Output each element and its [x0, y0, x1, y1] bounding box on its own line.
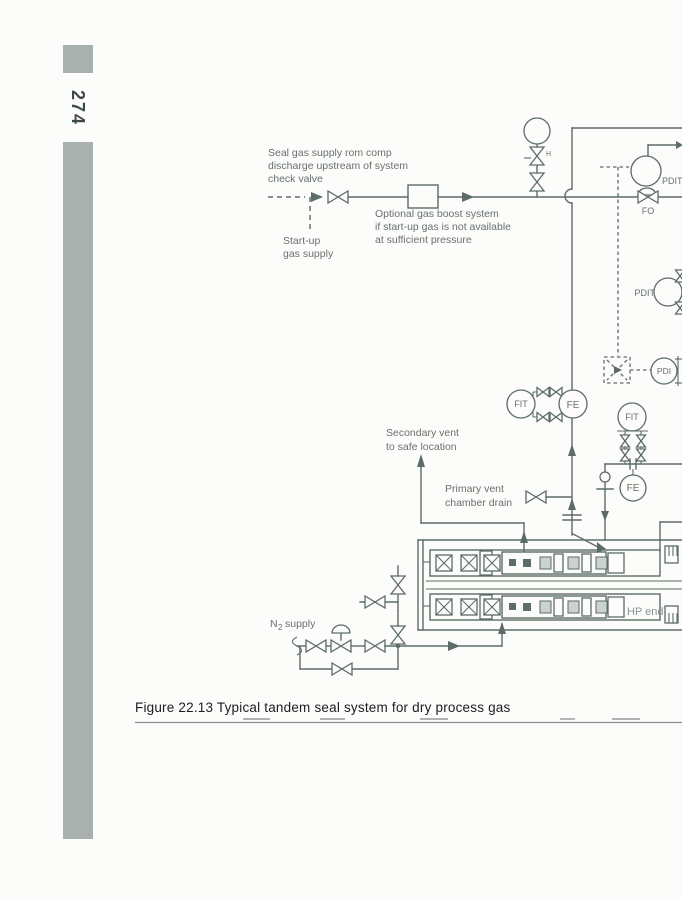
valve-icon: [676, 302, 682, 314]
flow-arrow-icon: [311, 192, 323, 202]
locked-valve-icon: [530, 147, 544, 165]
flow-meter-right: FIT FE: [597, 403, 682, 540]
valve-icon: [365, 640, 385, 652]
caption-rule: [135, 719, 682, 723]
svg-text:FE: FE: [567, 400, 580, 411]
boost-system-label: Optional gas boost system if start-up ga…: [375, 208, 511, 246]
svg-text:FO: FO: [642, 206, 655, 216]
valve-icon: [365, 596, 385, 608]
svg-text:Start-up: Start-up: [283, 235, 321, 247]
compressor-seal-assembly: HP end: [418, 522, 682, 630]
check-valve-icon: [328, 191, 348, 203]
drain-valve-icon: [526, 491, 546, 503]
primary-vent-drain: Primary vent chamber drain: [445, 483, 571, 509]
svg-text:N: N: [270, 618, 278, 630]
valve-icon: [537, 388, 549, 397]
svg-text:2: 2: [278, 623, 283, 632]
seal-cartridge-top: [430, 550, 660, 576]
flow-arrow-icon: [568, 498, 576, 510]
svg-text:FIT: FIT: [625, 412, 639, 422]
seal-gas-supply-label: Seal gas supply rom comp discharge upstr…: [268, 147, 408, 185]
svg-text:HP end: HP end: [627, 606, 664, 618]
actuator-diaphragm-icon: [631, 156, 661, 186]
figure-caption: Figure 22.13 Typical tandem seal system …: [135, 700, 510, 715]
startup-gas-label: Start-up gas supply: [283, 235, 334, 260]
valve-icon: [621, 435, 630, 447]
pdit-transmitter-mid: PDIT: [634, 270, 682, 314]
svg-text:H: H: [546, 151, 551, 158]
svg-text:Optional gas boost system: Optional gas boost system: [375, 208, 499, 220]
book-page: 274: [0, 0, 682, 900]
pdi-gauge-group: PDI: [604, 356, 682, 386]
valve-icon: [550, 413, 562, 422]
flow-arrow-icon: [520, 531, 528, 543]
svg-text:at sufficient pressure: at sufficient pressure: [375, 234, 472, 246]
valve-icon: [391, 576, 405, 594]
svg-text:PDIT: PDIT: [662, 176, 682, 186]
arrow-icon: [614, 366, 622, 374]
bearing-icon: [665, 606, 678, 623]
valve-icon: [637, 435, 646, 447]
bypass-valve-icon: [332, 663, 352, 675]
flow-meter-left: FIT FE: [507, 388, 587, 422]
svg-text:PDIT: PDIT: [634, 288, 655, 298]
seal-cartridge-bottom: [430, 594, 660, 620]
valve-icon: [676, 270, 682, 282]
svg-text:gas supply: gas supply: [283, 248, 334, 260]
svg-text:check valve: check valve: [268, 173, 323, 185]
valve-icon: [550, 388, 562, 397]
svg-text:FE: FE: [627, 483, 640, 494]
flow-arrow-icon: [448, 641, 460, 651]
flow-arrow-icon: [462, 192, 474, 202]
signal-arrow-icon: [676, 141, 682, 149]
valve-icon: [391, 626, 405, 644]
flow-arrow-icon: [568, 444, 576, 456]
svg-text:if start-up gas is not availab: if start-up gas is not available: [375, 221, 511, 233]
valve-icon: [306, 640, 326, 652]
svg-text:discharge upstream of system: discharge upstream of system: [268, 160, 408, 172]
svg-text:Primary vent: Primary vent: [445, 483, 504, 495]
gas-boost-box: [408, 185, 438, 208]
svg-text:Seal gas supply rom comp: Seal gas supply rom comp: [268, 147, 392, 159]
flow-arrow-icon: [601, 511, 609, 521]
regulator-dome-icon: [332, 625, 350, 633]
svg-text:FIT: FIT: [514, 399, 528, 409]
psv-bubble: [524, 118, 550, 144]
bearing-icon: [665, 546, 678, 563]
valve-icon: [621, 449, 630, 461]
fo-control-valve: FO PDIT: [600, 141, 682, 356]
regulator-valve-icon: [331, 640, 351, 652]
vent-arrow-icon: [417, 454, 425, 467]
svg-text:chamber drain: chamber drain: [445, 497, 512, 509]
valve-icon: [537, 413, 549, 422]
line-hop-icon: [565, 189, 572, 203]
svg-text:to safe location: to safe location: [386, 441, 457, 453]
svg-text:supply: supply: [285, 618, 316, 630]
psv-branch: H: [524, 118, 551, 197]
diagram-svg: Seal gas supply rom comp discharge upstr…: [0, 0, 682, 900]
block-valve-icon: [530, 173, 544, 191]
seal-pot-icon: [600, 472, 610, 482]
flow-arrow-icon: [498, 622, 506, 634]
svg-text:Secondary vent: Secondary vent: [386, 427, 459, 439]
svg-text:PDI: PDI: [657, 366, 671, 376]
valve-icon: [637, 449, 646, 461]
